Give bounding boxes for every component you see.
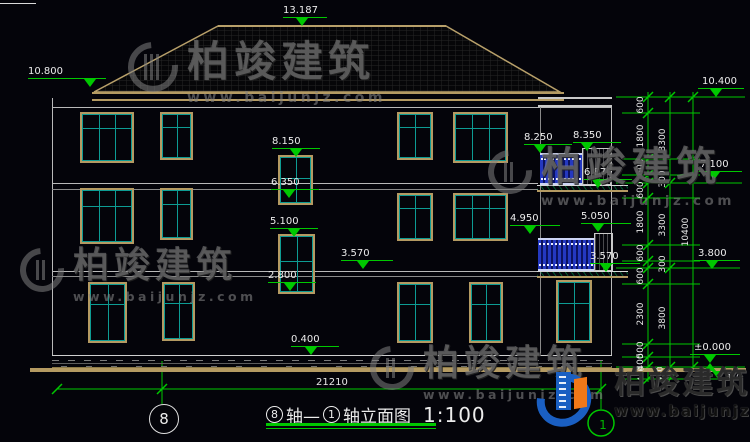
brand-url: www.baijunjz.com	[614, 402, 750, 420]
overall-width-dim: 21210	[316, 377, 348, 388]
watermark-logo-icon	[361, 337, 423, 399]
window	[80, 112, 134, 163]
elevation-marker: 13.187	[283, 5, 327, 26]
elevation-marker: 0.400	[291, 334, 339, 355]
dim-label: 1800	[636, 211, 646, 234]
elevation-value: 3.800	[698, 248, 740, 259]
wall-top-line	[52, 107, 612, 108]
elevation-marker: 5.100	[270, 216, 318, 237]
watermark-logo-icon	[11, 239, 73, 301]
cad-elevation-drawing: 13.187 10.800 8.150 6.350 5.100 2.800 3.…	[0, 0, 750, 442]
elevation-value: 3.570	[341, 248, 393, 259]
axis-circle: 1	[323, 406, 340, 423]
watermark-url: www.baijunjz.com	[187, 90, 386, 106]
watermark-brand: 柏竣建筑	[541, 134, 735, 192]
watermark-url: www.baijunjz.com	[73, 289, 257, 304]
elevation-marker: 2.800	[268, 270, 316, 291]
elevation-value: 0.400	[291, 334, 339, 345]
window	[160, 188, 193, 240]
axis-circle: 8	[266, 406, 283, 423]
watermark-url: www.baijunjz.com	[541, 193, 735, 209]
window	[397, 112, 433, 160]
elevation-value: 10.400	[702, 76, 744, 87]
brand-logo-icon	[534, 366, 606, 436]
viewport-edge-line	[0, 3, 36, 4]
dim-label: 2300	[636, 303, 646, 326]
watermark-logo-icon	[479, 141, 541, 203]
elevation-marker: 5.050	[581, 211, 631, 232]
title-underline-thin	[266, 428, 436, 429]
elevation-marker: 6.350	[271, 177, 319, 198]
elevation-value: 6.350	[271, 177, 319, 188]
elevation-value: 10.800	[28, 66, 106, 77]
watermark: 柏竣建筑 www.baijunjz.com	[488, 134, 735, 209]
elevation-marker: 3.800	[698, 248, 740, 269]
brand-name: 柏竣建筑	[614, 366, 750, 402]
elevation-marker: 10.400	[702, 76, 744, 97]
dim-label: 10400	[681, 218, 691, 247]
window	[160, 112, 193, 160]
watermark: 柏竣建筑 www.baijunjz.com	[20, 236, 257, 304]
dim-label: 600	[636, 96, 646, 113]
balcony-railing	[538, 238, 594, 271]
watermark-brand: 柏竣建筑	[187, 28, 386, 89]
elevation-value: 13.187	[283, 5, 327, 16]
elevation-marker: 8.150	[272, 136, 320, 157]
elevation-value: 5.100	[270, 216, 318, 227]
balcony-slab	[537, 271, 628, 278]
elevation-value: 2.800	[268, 270, 316, 281]
elevation-value: 4.950	[510, 213, 560, 224]
title-underline	[266, 423, 436, 426]
elevation-marker: 10.800	[28, 66, 106, 87]
dim-label: 600	[636, 267, 646, 284]
dim-label: 3800	[658, 307, 668, 330]
watermark: 柏竣建筑 www.baijunjz.com	[128, 28, 386, 106]
window	[397, 193, 433, 241]
elevation-marker: 4.950	[510, 213, 560, 234]
dim-label: 300	[658, 255, 668, 272]
elevation-value: 5.050	[581, 211, 631, 222]
elevation-marker: 3.570	[590, 251, 640, 272]
wall-left-edge	[52, 98, 53, 355]
elevation-value: 3.570	[590, 251, 640, 262]
brand-logo: 柏竣建筑 www.baijunjz.com	[534, 366, 750, 436]
elevation-value: 8.150	[272, 136, 320, 147]
elevation-marker: 3.570	[341, 248, 393, 269]
bay-parapet	[538, 97, 612, 107]
elevation-value: ±0.000	[694, 342, 740, 353]
dim-label: 3300	[658, 214, 668, 237]
watermark-brand: 柏竣建筑	[73, 236, 257, 288]
watermark-logo-icon	[118, 32, 188, 102]
dim-label: 600	[636, 244, 646, 261]
axis-bubble-left: 8	[149, 404, 179, 434]
